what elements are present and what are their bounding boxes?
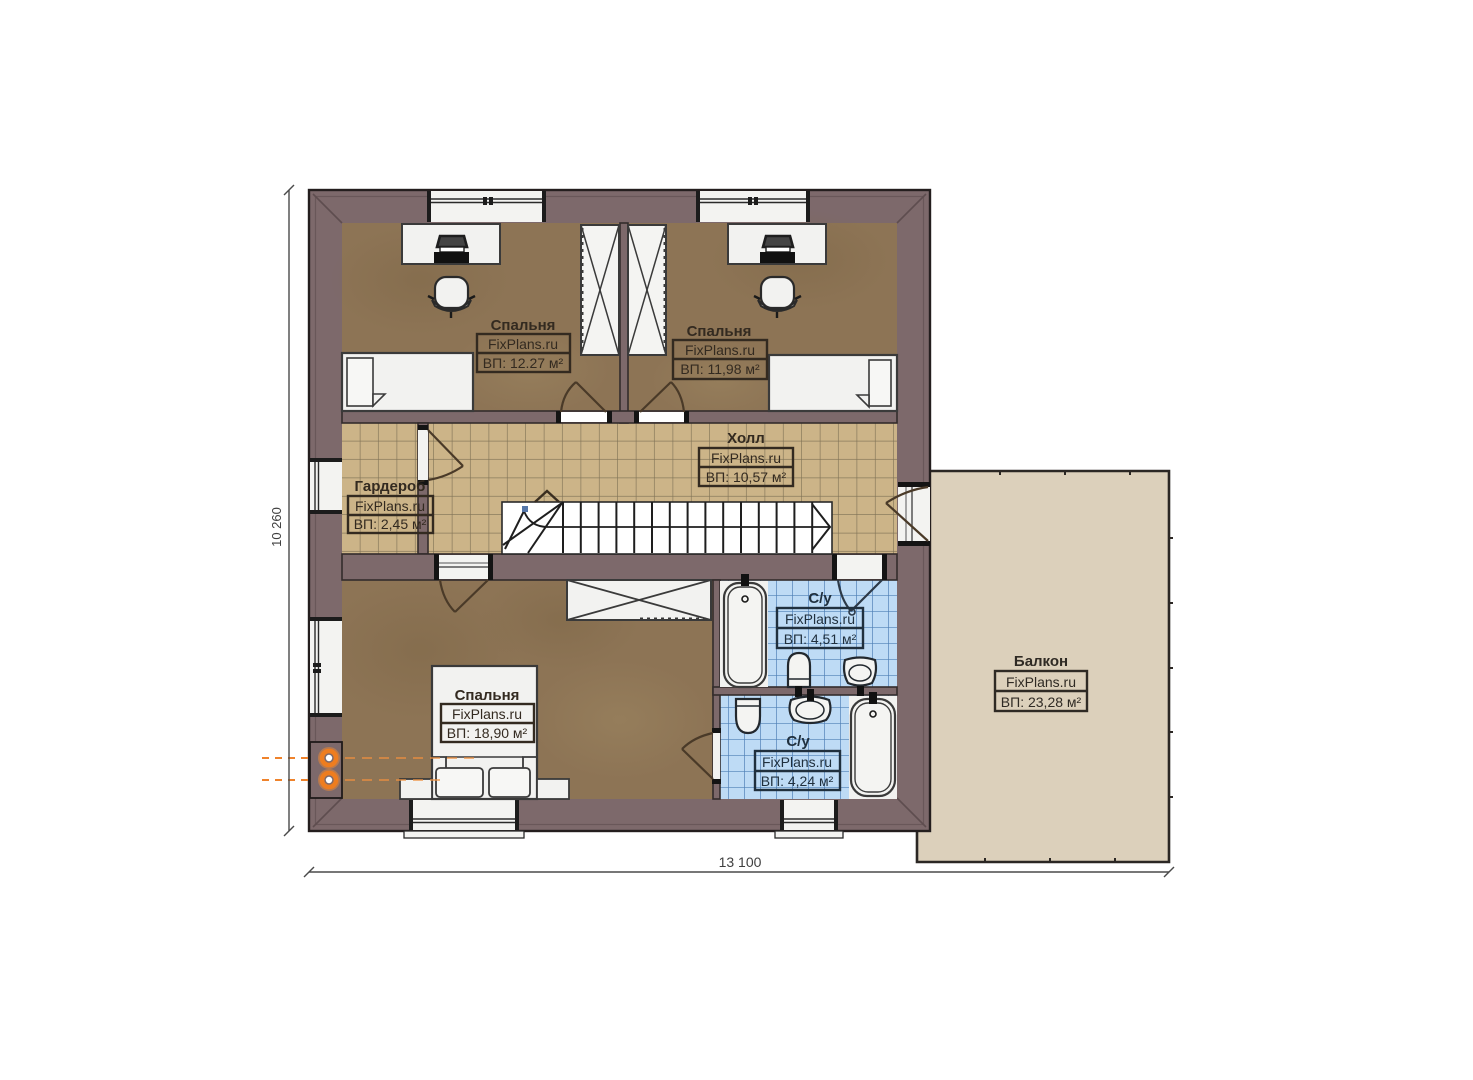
svg-text:13 100: 13 100 <box>719 854 762 870</box>
svg-text:FixPlans.ru: FixPlans.ru <box>488 336 558 352</box>
svg-text:Балкон: Балкон <box>1014 653 1068 670</box>
svg-text:ВП: 23,28 м²: ВП: 23,28 м² <box>1001 694 1082 710</box>
svg-text:ВП: 4,51 м²: ВП: 4,51 м² <box>784 631 857 647</box>
svg-text:FixPlans.ru: FixPlans.ru <box>711 450 781 466</box>
svg-text:10 260: 10 260 <box>269 507 284 547</box>
svg-text:Спальня: Спальня <box>455 687 520 704</box>
svg-text:FixPlans.ru: FixPlans.ru <box>355 498 425 514</box>
svg-text:ВП: 10,57 м²: ВП: 10,57 м² <box>706 469 787 485</box>
svg-text:FixPlans.ru: FixPlans.ru <box>785 611 855 627</box>
svg-text:ВП: 18,90 м²: ВП: 18,90 м² <box>447 725 528 741</box>
svg-text:ВП: 12.27 м²: ВП: 12.27 м² <box>483 355 564 371</box>
svg-text:Спальня: Спальня <box>687 323 752 340</box>
svg-text:ВП: 4,24 м²: ВП: 4,24 м² <box>761 773 834 789</box>
svg-text:ВП: 11,98 м²: ВП: 11,98 м² <box>680 361 760 377</box>
svg-text:Холл: Холл <box>727 430 765 447</box>
svg-text:FixPlans.ru: FixPlans.ru <box>685 342 755 358</box>
svg-text:FixPlans.ru: FixPlans.ru <box>1006 674 1076 690</box>
svg-text:С/у: С/у <box>808 590 832 607</box>
svg-text:Спальня: Спальня <box>491 317 556 334</box>
svg-text:С/у: С/у <box>786 733 810 750</box>
svg-text:FixPlans.ru: FixPlans.ru <box>762 754 832 770</box>
svg-text:FixPlans.ru: FixPlans.ru <box>452 706 522 722</box>
svg-text:ВП: 2,45 м²: ВП: 2,45 м² <box>354 516 427 532</box>
svg-text:Гардероб: Гардероб <box>355 478 426 495</box>
